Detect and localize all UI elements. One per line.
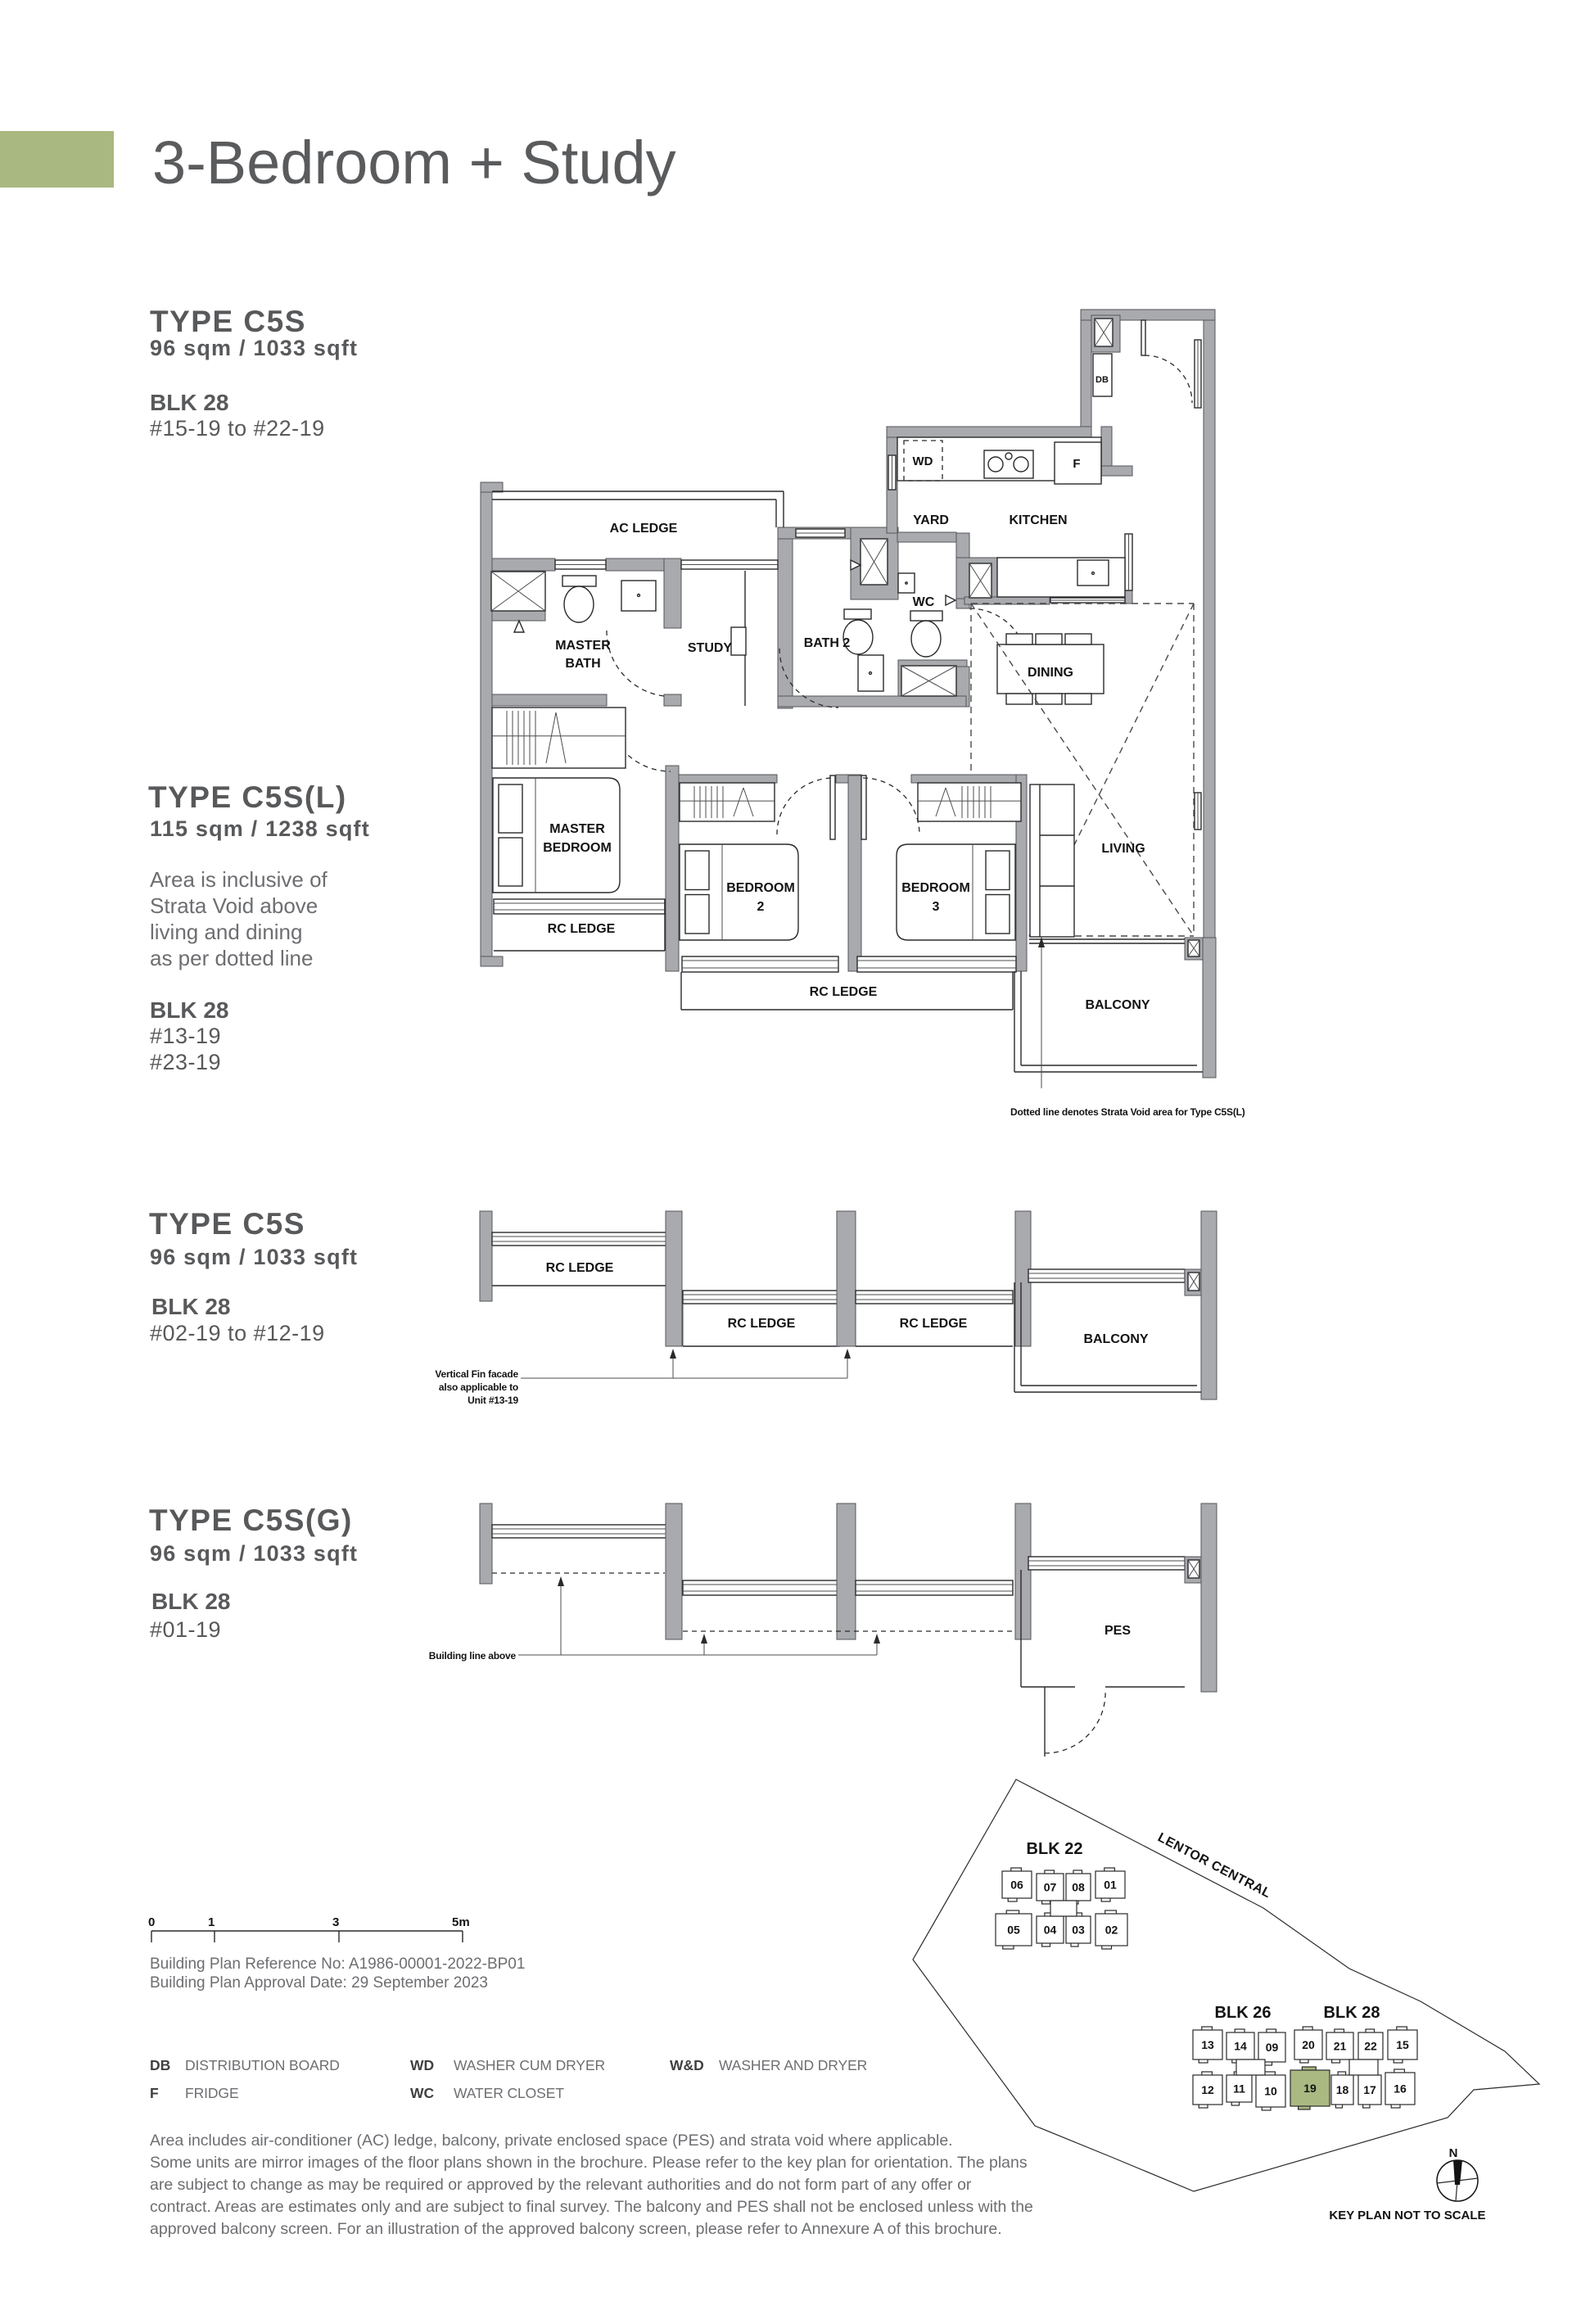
svg-text:DISTRIBUTION BOARD: DISTRIBUTION BOARD (185, 2057, 340, 2073)
svg-text:BLK 28: BLK 28 (150, 390, 228, 415)
svg-text:115 sqm / 1238 sqft: 115 sqm / 1238 sqft (150, 816, 370, 841)
svg-text:BLK 28: BLK 28 (151, 1589, 230, 1614)
svg-text:13: 13 (1201, 2038, 1214, 2051)
svg-text:FRIDGE: FRIDGE (185, 2085, 239, 2101)
svg-text:96 sqm / 1033 sqft: 96 sqm / 1033 sqft (150, 1541, 358, 1566)
svg-text:#13-19: #13-19 (150, 1024, 221, 1048)
svg-text:BEDROOM: BEDROOM (543, 841, 612, 855)
svg-text:#02-19 to #12-19: #02-19 to #12-19 (150, 1321, 325, 1345)
svg-text:DB: DB (1095, 375, 1109, 385)
svg-text:15: 15 (1396, 2038, 1409, 2051)
svg-text:19: 19 (1303, 2082, 1317, 2095)
svg-text:0: 0 (148, 1915, 155, 1929)
svg-text:are subject to change as may b: are subject to change as may be required… (150, 2176, 972, 2194)
svg-text:07: 07 (1044, 1881, 1057, 1894)
svg-text:Building Plan Approval Date: 2: Building Plan Approval Date: 29 Septembe… (150, 1974, 488, 1992)
svg-text:living and dining: living and dining (150, 920, 302, 944)
svg-text:3-Bedroom + Study: 3-Bedroom + Study (152, 129, 676, 197)
svg-text:TYPE C5S(L): TYPE C5S(L) (148, 780, 347, 814)
svg-text:17: 17 (1363, 2083, 1376, 2096)
svg-text:BLK 28: BLK 28 (150, 997, 228, 1023)
svg-text:#01-19: #01-19 (150, 1617, 221, 1642)
svg-text:Unit #13-19: Unit #13-19 (468, 1395, 518, 1406)
svg-text:Some units are mirror images o: Some units are mirror images of the floo… (150, 2154, 1028, 2172)
svg-text:BLK 28: BLK 28 (1324, 2004, 1380, 2022)
svg-text:F: F (1073, 457, 1080, 471)
svg-text:also applicable to: also applicable to (439, 1381, 518, 1393)
svg-text:11: 11 (1233, 2082, 1245, 2096)
svg-text:KEY PLAN NOT TO SCALE: KEY PLAN NOT TO SCALE (1329, 2209, 1485, 2222)
svg-text:BALCONY: BALCONY (1085, 998, 1150, 1012)
svg-text:RC LEDGE: RC LEDGE (900, 1317, 968, 1331)
svg-text:RC LEDGE: RC LEDGE (548, 922, 616, 936)
svg-text:MASTER: MASTER (549, 822, 605, 836)
svg-text:RC LEDGE: RC LEDGE (546, 1261, 614, 1275)
svg-text:MASTER: MASTER (555, 639, 611, 653)
svg-text:#23-19: #23-19 (150, 1050, 221, 1074)
svg-text:06: 06 (1010, 1879, 1023, 1892)
svg-text:RC LEDGE: RC LEDGE (810, 985, 878, 999)
svg-text:BATH 2: BATH 2 (804, 636, 851, 650)
svg-text:W&D: W&D (670, 2057, 704, 2073)
svg-text:3: 3 (332, 1915, 339, 1929)
svg-text:TYPE C5S(G): TYPE C5S(G) (149, 1503, 353, 1537)
svg-text:as per dotted line: as per dotted line (150, 946, 313, 970)
svg-text:WD: WD (410, 2057, 434, 2073)
svg-text:LENTOR CENTRAL: LENTOR CENTRAL (1155, 1830, 1273, 1901)
svg-text:08: 08 (1072, 1881, 1085, 1894)
svg-text:21: 21 (1334, 2040, 1347, 2053)
svg-text:14: 14 (1234, 2040, 1247, 2053)
svg-text:20: 20 (1302, 2038, 1315, 2051)
svg-text:N: N (1449, 2146, 1458, 2160)
svg-text:TYPE C5S: TYPE C5S (150, 305, 306, 338)
svg-text:2: 2 (757, 900, 765, 914)
svg-text:WASHER AND DRYER: WASHER AND DRYER (719, 2057, 867, 2073)
svg-text:Vertical Fin facade: Vertical Fin facade (435, 1368, 518, 1380)
svg-text:WATER CLOSET: WATER CLOSET (454, 2085, 564, 2101)
svg-text:BLK 28: BLK 28 (151, 1294, 230, 1319)
svg-text:DINING: DINING (1028, 666, 1073, 680)
svg-text:09: 09 (1266, 2041, 1279, 2054)
svg-text:TYPE C5S: TYPE C5S (149, 1207, 305, 1241)
svg-text:04: 04 (1044, 1924, 1057, 1937)
svg-text:BEDROOM: BEDROOM (726, 881, 795, 895)
svg-text:18: 18 (1336, 2083, 1349, 2096)
svg-text:RC LEDGE: RC LEDGE (728, 1317, 796, 1331)
svg-text:BLK 26: BLK 26 (1215, 2004, 1272, 2022)
svg-text:WC: WC (410, 2085, 435, 2101)
svg-text:F: F (150, 2085, 159, 2101)
svg-text:AC LEDGE: AC LEDGE (610, 522, 678, 536)
svg-text:1: 1 (208, 1915, 215, 1929)
svg-text:BLK 22: BLK 22 (1027, 1840, 1083, 1858)
svg-text:12: 12 (1201, 2083, 1214, 2096)
svg-text:5m: 5m (452, 1915, 470, 1929)
svg-text:#15-19 to #22-19: #15-19 to #22-19 (150, 416, 325, 441)
svg-text:YARD: YARD (913, 513, 949, 527)
svg-text:BATH: BATH (565, 657, 600, 671)
svg-text:10: 10 (1264, 2085, 1277, 2098)
svg-text:DB: DB (150, 2057, 170, 2073)
svg-text:Building Plan Reference No: A1: Building Plan Reference No: A1986-00001-… (150, 1956, 525, 1973)
svg-text:WC: WC (913, 595, 935, 609)
svg-text:PES: PES (1104, 1624, 1131, 1638)
svg-text:96 sqm / 1033 sqft: 96 sqm / 1033 sqft (150, 336, 358, 360)
svg-text:WD: WD (913, 454, 933, 468)
svg-text:WASHER CUM DRYER: WASHER CUM DRYER (454, 2057, 605, 2073)
svg-text:3: 3 (933, 900, 940, 914)
svg-text:Dotted line denotes Strata Voi: Dotted line denotes Strata Void area for… (1010, 1106, 1245, 1118)
svg-text:05: 05 (1007, 1924, 1020, 1937)
svg-text:Strata Void above: Strata Void above (150, 893, 318, 918)
svg-text:BEDROOM: BEDROOM (901, 881, 970, 895)
svg-text:approved balcony screen. For a: approved balcony screen. For an illustra… (150, 2220, 1002, 2238)
svg-text:Area includes air-conditioner: Area includes air-conditioner (AC) ledge… (150, 2132, 953, 2150)
svg-text:Area is inclusive of: Area is inclusive of (150, 867, 328, 892)
svg-text:02: 02 (1105, 1924, 1118, 1937)
svg-text:STUDY: STUDY (688, 641, 733, 655)
svg-text:96 sqm / 1033 sqft: 96 sqm / 1033 sqft (150, 1245, 358, 1269)
svg-text:01: 01 (1104, 1879, 1117, 1892)
svg-text:BALCONY: BALCONY (1083, 1332, 1148, 1346)
svg-text:KITCHEN: KITCHEN (1009, 513, 1067, 527)
svg-text:03: 03 (1072, 1924, 1085, 1937)
svg-text:Building line above: Building line above (429, 1650, 517, 1662)
svg-text:16: 16 (1394, 2082, 1407, 2096)
svg-text:22: 22 (1364, 2040, 1377, 2053)
svg-text:LIVING: LIVING (1101, 842, 1145, 856)
svg-text:contract. Areas are estimates: contract. Areas are estimates only and a… (150, 2198, 1033, 2216)
